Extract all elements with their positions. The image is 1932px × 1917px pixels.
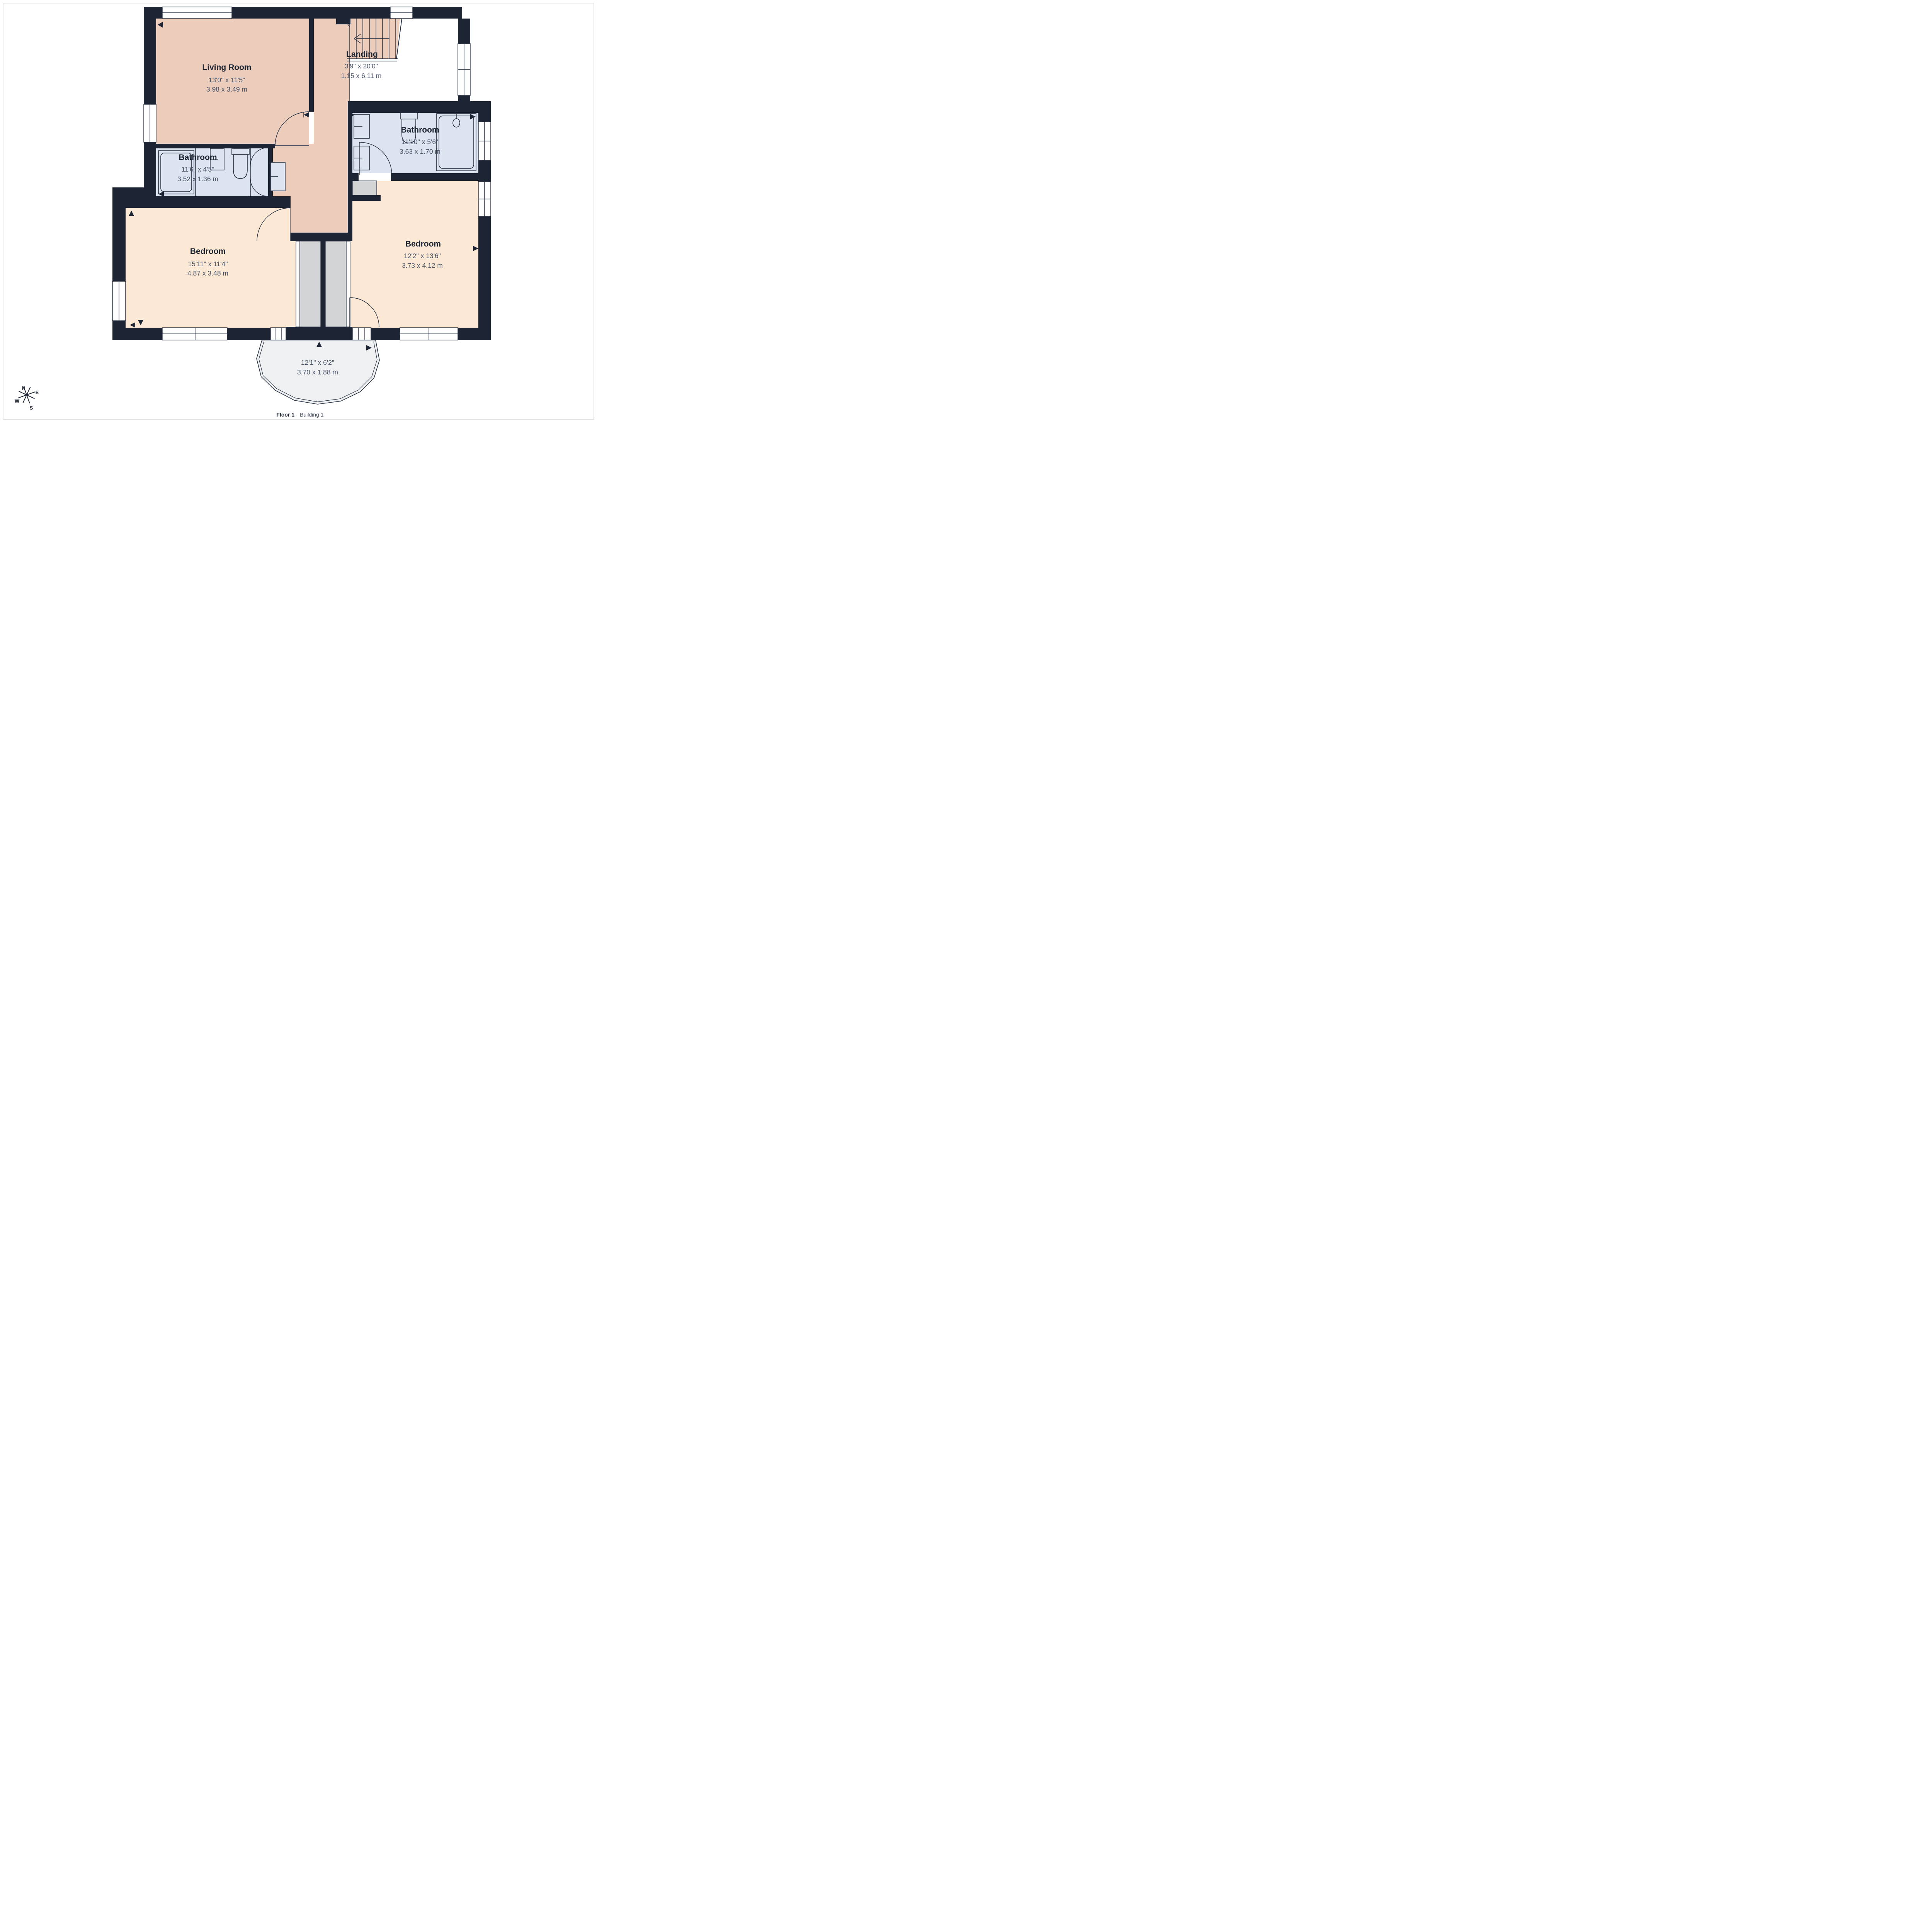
bathroom-left-dims-imperial: 11'6" x 4'5" bbox=[182, 165, 214, 173]
bedroom-right-dims-metric: 3.73 x 4.12 m bbox=[402, 262, 443, 269]
floorplan-canvas: Living Room 13'0" x 11'5" 3.98 x 3.49 m … bbox=[0, 0, 597, 422]
chimney-flue-right bbox=[325, 241, 346, 327]
caption: Floor 1 Building 1 bbox=[276, 412, 323, 418]
building-caption: Building 1 bbox=[300, 412, 324, 418]
chimney-side-window-left bbox=[296, 241, 300, 327]
living-room-label: Living Room bbox=[202, 63, 251, 72]
bedroom-right-label: Bedroom bbox=[405, 240, 441, 248]
compass-east-label: E bbox=[36, 390, 39, 395]
bedroom-left-dims-imperial: 15'11" x 11'4" bbox=[188, 260, 228, 268]
bedroom-left-label: Bedroom bbox=[190, 247, 226, 256]
compass-north-label: N bbox=[22, 385, 25, 391]
living-room-dims-imperial: 13'0" x 11'5" bbox=[209, 76, 245, 84]
floor-caption: Floor 1 bbox=[276, 412, 294, 418]
bedroom-left-dims-metric: 4.87 x 3.48 m bbox=[187, 269, 228, 277]
balcony-dims-imperial: 12'1" x 6'2" bbox=[301, 359, 334, 366]
bathroom-right-dims-imperial: 11'10" x 5'6" bbox=[402, 138, 439, 146]
bathroom-right-label: Bathroom bbox=[401, 126, 439, 134]
bedroom-left-floor bbox=[126, 208, 297, 328]
balcony-door-left bbox=[270, 328, 286, 340]
chimney-flue-left bbox=[300, 241, 321, 327]
floorplan-page: Living Room 13'0" x 11'5" 3.98 x 3.49 m … bbox=[0, 0, 597, 422]
landing-dims-metric: 1.15 x 6.11 m bbox=[341, 72, 382, 80]
landing-label: Landing bbox=[346, 50, 378, 59]
balcony-door-right bbox=[352, 328, 371, 340]
balcony-dims-metric: 3.70 x 1.88 m bbox=[297, 368, 338, 376]
landing-dims-imperial: 3'9" x 20'0" bbox=[345, 62, 378, 70]
bedroom-right-dims-imperial: 12'2" x 13'6" bbox=[404, 252, 441, 260]
sink-hallway bbox=[270, 162, 285, 191]
bathroom-left-dims-metric: 3.52 x 1.36 m bbox=[177, 175, 218, 183]
compass-west-label: W bbox=[15, 398, 20, 404]
bathroom-left-label: Bathroom bbox=[179, 153, 217, 162]
bathroom-right-dims-metric: 3.63 x 1.70 m bbox=[400, 148, 440, 155]
living-room-dims-metric: 3.98 x 3.49 m bbox=[206, 85, 247, 93]
closet bbox=[352, 181, 377, 195]
compass-south-label: S bbox=[30, 405, 33, 411]
